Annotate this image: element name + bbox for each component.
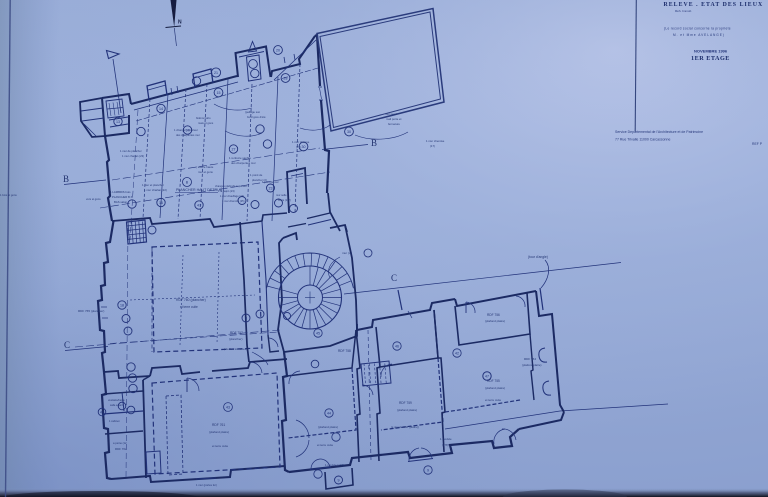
svg-text:30: 30 [347, 130, 351, 134]
svg-text:finale (117): finale (117) [278, 198, 291, 202]
svg-text:RDF 754: RDF 754 [524, 357, 536, 361]
svg-text:a peine (12: a peine (12 [113, 441, 127, 445]
svg-text:C: C [391, 273, 397, 283]
svg-text:et terre cuite: et terre cuite [485, 398, 501, 402]
svg-text:(Le record social concerne la: (Le record social concerne la propriete [664, 26, 731, 30]
svg-text:9: 9 [338, 478, 340, 482]
svg-text:REF P: REF P [752, 142, 763, 146]
svg-text:vers et gons: vers et gons [86, 197, 101, 201]
svg-text:44: 44 [327, 411, 331, 415]
svg-text:18: 18 [120, 303, 124, 307]
svg-text:(vieilles tomettes): (vieilles tomettes) [224, 347, 247, 351]
svg-text:B: B [63, 174, 69, 184]
svg-text:PLANCHER B.S.: PLANCHER B.S. [112, 195, 134, 199]
svg-text:16: 16 [159, 201, 163, 205]
svg-text:des charpentes mur: des charpentes mur [231, 161, 256, 165]
svg-text:42: 42 [455, 351, 459, 355]
svg-text:47: 47 [485, 374, 489, 378]
svg-text:77 Rue Trivalle 11000 Carcass: 77 Rue Trivalle 11000 Carcassonne [615, 138, 670, 142]
svg-text:1 changer supérieur: 1 changer supérieur [174, 128, 198, 132]
svg-text:1 module (178): 1 module (178) [325, 463, 344, 467]
svg-text:(plancher): (plancher) [229, 337, 243, 341]
svg-text:mur et gons: mur et gons [198, 170, 213, 174]
svg-text:RDF 759: RDF 759 [399, 401, 412, 405]
svg-text:1 renforce saphin: 1 renforce saphin [229, 156, 251, 160]
svg-text:9: 9 [427, 468, 429, 472]
svg-text:BAS salon: BAS salon [114, 200, 128, 204]
svg-text:20: 20 [276, 48, 280, 52]
svg-text:45: 45 [316, 331, 320, 335]
svg-text:salle a part: salle a part [110, 403, 123, 407]
svg-text:47: 47 [197, 203, 201, 207]
svg-text:(plafond platre): (plafond platre) [318, 425, 338, 429]
svg-text:(plafond platre): (plafond platre) [522, 363, 541, 367]
svg-text:RDF 760 (plancher): RDF 760 (plancher) [176, 298, 206, 302]
svg-text:21: 21 [214, 71, 218, 75]
svg-text:14: 14 [159, 107, 163, 111]
svg-text:40: 40 [100, 410, 104, 414]
svg-text:B: B [371, 138, 377, 148]
svg-text:mur selle: mur selle [276, 193, 287, 197]
svg-text:C: C [64, 340, 70, 350]
svg-text:15: 15 [217, 91, 221, 95]
svg-text:fond gore d'été: fond gore d'été [247, 115, 266, 119]
svg-text:mais et gons: mais et gons [198, 121, 214, 125]
svg-text:46: 46 [395, 344, 399, 348]
svg-text:et terre cuite: et terre cuite [317, 443, 333, 447]
svg-text:RDF 758: RDF 758 [338, 349, 351, 353]
svg-text:RELEVE . ETAT DES LIEUX: RELEVE . ETAT DES LIEUX [664, 2, 764, 8]
svg-text:mur (A): mur (A) [342, 251, 352, 255]
svg-text:(17): (17) [430, 144, 435, 148]
svg-text:28: 28 [284, 76, 288, 80]
svg-text:1 mur et plancher: 1 mur et plancher [142, 183, 164, 187]
svg-text:1 point de: 1 point de [250, 173, 263, 177]
svg-text:1 module: 1 module [440, 437, 452, 441]
svg-text:+ la bajon (23): + la bajon (23) [218, 189, 235, 193]
svg-text:43: 43 [226, 405, 230, 409]
svg-text:mur recal: mur recal [385, 112, 397, 116]
svg-text:(178): (178) [442, 443, 449, 447]
svg-text:1ER ETAGE: 1ER ETAGE [691, 55, 730, 62]
svg-text:1 mur charlan (23): 1 mur charlan (23) [122, 154, 144, 158]
svg-text:1 mur (portes fer): 1 mur (portes fer) [196, 483, 217, 487]
svg-text:1 mur charlan (22): 1 mur charlan (22) [144, 188, 167, 192]
svg-text:30: 30 [302, 145, 306, 149]
svg-text:RDF 762: RDF 762 [115, 447, 127, 451]
svg-text:M. et Mme AVELANGE): M. et Mme AVELANGE) [673, 33, 725, 37]
svg-text:27: 27 [232, 147, 236, 151]
svg-text:vestiaire/bains: vestiaire/bains [108, 398, 125, 402]
svg-text:1 cabinet: 1 cabinet [109, 419, 120, 423]
svg-text:1 mur chemine (25): 1 mur chemine (25) [222, 199, 245, 203]
svg-text:1 mur chemise: 1 mur chemise [426, 139, 445, 143]
svg-text:1 mur de plancher: 1 mur de plancher [120, 149, 142, 153]
svg-text:1 bois et gons: 1 bois et gons [0, 193, 17, 197]
svg-text:Service Departemental de l'Arc: Service Departemental de l'Architecture … [615, 130, 703, 134]
svg-text:(plafond platre): (plafond platre) [397, 408, 417, 412]
svg-text:et terre cuite: et terre cuite [212, 444, 228, 448]
svg-text:(plafond platre): (plafond platre) [485, 319, 505, 323]
svg-text:N: N [178, 20, 182, 26]
svg-text:des charpentes mur: des charpentes mur [176, 133, 200, 137]
svg-text:(x gueule 180°(platre)): (x gueule 180°(platre)) [391, 425, 419, 429]
svg-text:13: 13 [116, 120, 120, 124]
svg-text:RDF 756: RDF 756 [487, 313, 500, 317]
svg-text:bidons haho: bidons haho [196, 116, 211, 120]
svg-text:(tour d'angle): (tour d'angle) [528, 255, 548, 259]
svg-text:(pellage son: (pellage son [245, 110, 261, 114]
svg-text:Réh. Immob: Réh. Immob [675, 9, 692, 13]
svg-text:8: 8 [245, 316, 247, 320]
svg-text:1 mur charme: 1 mur charme [292, 140, 310, 144]
svg-text:(17): (17) [296, 145, 301, 149]
svg-text:RDF 765 (plancher): RDF 765 (plancher) [78, 309, 104, 313]
svg-text:RDF 761: RDF 761 [212, 423, 225, 427]
svg-text:23: 23 [269, 186, 273, 190]
svg-text:NOVEMBRE 1996: NOVEMBRE 1996 [694, 48, 728, 53]
svg-text:mail porte et: mail porte et [386, 117, 402, 121]
svg-text:(plafond platre): (plafond platre) [209, 430, 229, 434]
svg-text:1 LAMBRIS bois: 1 LAMBRIS bois [110, 190, 131, 194]
svg-text:fermeture: fermeture [388, 122, 400, 126]
svg-text:(plafond platre): (plafond platre) [485, 386, 505, 390]
svg-text:1 mur chauffage (24): 1 mur chauffage (24) [220, 194, 244, 198]
svg-text:et terre cuite: et terre cuite [180, 305, 198, 309]
